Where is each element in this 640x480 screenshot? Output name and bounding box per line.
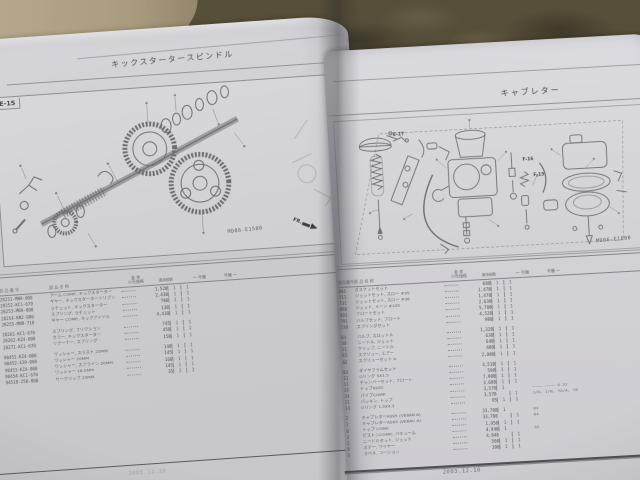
qty-col-2: 1 bbox=[505, 315, 518, 321]
qty-col-1: 1 bbox=[499, 444, 512, 450]
part-number: 3 bbox=[347, 434, 363, 440]
dot-leader bbox=[126, 360, 140, 363]
qty-col-1: 1 bbox=[171, 343, 184, 349]
dot-leader bbox=[449, 371, 463, 374]
qty-col-1: 1 bbox=[498, 419, 511, 425]
qty-col-2: 1 bbox=[507, 344, 520, 350]
dot-leader bbox=[447, 330, 461, 333]
right-table-body: 801 ガスケットセット 680 1 1 711 ジェットセット, スロー #3… bbox=[338, 270, 640, 458]
qty-col-2: 1 bbox=[505, 309, 518, 315]
qty-col-1: 1 bbox=[170, 320, 183, 326]
part-number: 990 bbox=[339, 306, 355, 312]
right-page-title: キャブレター bbox=[436, 81, 626, 103]
dot-leader bbox=[125, 337, 139, 340]
dot-leader bbox=[444, 283, 458, 286]
dot-leader bbox=[450, 377, 464, 380]
qty-col-1: 1 bbox=[167, 285, 180, 291]
qty-col-1: 1 bbox=[496, 379, 509, 385]
part-price: 980 bbox=[462, 317, 492, 324]
qty-col-1: 1 bbox=[499, 437, 512, 443]
part-number: 03 bbox=[343, 369, 359, 375]
qty-col-1: 1 bbox=[494, 344, 507, 350]
qty-col-1: 1 bbox=[168, 291, 181, 297]
qty-col-2: 1 bbox=[181, 296, 194, 302]
qty-col-1: 1 bbox=[173, 362, 186, 368]
dot-leader bbox=[126, 347, 140, 350]
qty-col-2: 2 bbox=[186, 367, 199, 373]
header-rule bbox=[333, 63, 640, 82]
dot-leader bbox=[452, 417, 466, 420]
qty-col-1 bbox=[499, 434, 512, 435]
qty-col-2: 1 bbox=[511, 412, 524, 418]
part-price: 150 bbox=[141, 333, 171, 340]
dot-leader bbox=[126, 354, 140, 357]
dot-leader bbox=[445, 302, 459, 305]
qty-col-1: 1 bbox=[494, 350, 507, 356]
qty-col-1: 1 bbox=[172, 355, 185, 361]
left-parts-table: 部 品 番 号 部 品 名 称 参 考小売価格 適用個数 〜 号機号機 〜 一連… bbox=[0, 252, 365, 386]
qty-col-2: 1 bbox=[184, 342, 197, 348]
qty-col-2: 1 bbox=[180, 284, 193, 290]
dot-leader bbox=[122, 302, 136, 305]
dot-leader bbox=[446, 308, 460, 311]
part-number: 993 bbox=[340, 312, 356, 318]
part-price: 35 bbox=[143, 369, 173, 376]
right-footer-date: 2003.12.10 bbox=[443, 467, 481, 475]
arrow-tail bbox=[302, 222, 311, 228]
dot-leader bbox=[124, 325, 138, 328]
qty-col-1: 1 bbox=[492, 310, 505, 316]
qty-col-2: 1 bbox=[507, 350, 520, 356]
qty-col-2: 1 bbox=[508, 360, 521, 366]
qty-col-2: 1 bbox=[184, 332, 197, 338]
part-number: 801 bbox=[338, 288, 354, 294]
dot-leader bbox=[448, 354, 462, 357]
part-number: 02 bbox=[342, 359, 358, 365]
dot-leader bbox=[452, 423, 466, 426]
dot-leader bbox=[451, 401, 465, 404]
part-number: 04 bbox=[341, 334, 357, 340]
qty-col-2: 1 bbox=[509, 390, 522, 396]
dot-leader bbox=[452, 429, 466, 432]
qty-col-2: 1 bbox=[512, 437, 525, 443]
qty-col-1: 1 bbox=[169, 303, 182, 309]
part-number: 30 bbox=[341, 340, 357, 346]
qty-col-2: 1 bbox=[504, 297, 517, 303]
qty-col-1: 1 bbox=[171, 333, 184, 339]
qty-col-2: 1 bbox=[181, 290, 194, 296]
part-number: 791 bbox=[340, 318, 356, 324]
right-parts-table: 部品番号 部 品 名 称 参 考小売価格 適用個数 〜 号機号機 〜 一連番号 … bbox=[337, 251, 640, 458]
qty-col-1: 1 bbox=[496, 385, 509, 391]
part-number: 11 bbox=[345, 399, 361, 405]
reference-label: E-17 bbox=[393, 132, 404, 138]
dot-leader bbox=[451, 411, 465, 414]
qty-col-2: 1 bbox=[185, 354, 198, 360]
reference-label: F-15 bbox=[533, 172, 544, 178]
qty-col-1: 1 bbox=[497, 397, 510, 403]
left-footer-date: 2003.12.10 bbox=[128, 468, 166, 477]
part-number: 34 bbox=[344, 393, 360, 399]
qty-col-2: 1 bbox=[508, 366, 521, 372]
qty-col-2: 1 bbox=[506, 325, 519, 331]
photo-of-open-parts-catalog: キックスタータースピンドル E-15 bbox=[0, 0, 640, 480]
dot-leader bbox=[450, 383, 464, 386]
dot-leader bbox=[453, 435, 467, 438]
part-number: 11 bbox=[342, 347, 358, 353]
dot-leader bbox=[451, 395, 465, 398]
carburetor-diagram-frame: E-17F-16F-15 MD06-E1600 bbox=[333, 103, 640, 265]
part-number: 11 bbox=[344, 381, 360, 387]
dot-leader bbox=[124, 331, 138, 334]
dot-leader bbox=[448, 348, 462, 351]
qty-col-1: 1 bbox=[172, 349, 185, 355]
left-page: キックスタータースピンドル E-15 bbox=[0, 15, 380, 480]
part-number: 0 bbox=[346, 428, 362, 434]
dot-leader bbox=[127, 373, 141, 376]
qty-col-2: 1 bbox=[505, 303, 518, 309]
part-number: 11 bbox=[343, 375, 359, 381]
qty-col-1: 1 bbox=[491, 298, 504, 304]
part-price: 2,000 bbox=[464, 351, 494, 358]
qty-col-2: 1 bbox=[508, 372, 521, 378]
qty-col-1: 1 bbox=[495, 367, 508, 373]
reference-label: F-16 bbox=[522, 157, 533, 163]
part-price: 4,410 bbox=[139, 311, 169, 318]
qty-col-2: 1 bbox=[506, 331, 519, 337]
part-number: 5 bbox=[348, 452, 364, 458]
qty-col-2: 1 bbox=[509, 378, 522, 384]
right-page: キャブレター bbox=[323, 33, 640, 480]
qty-col-2: 1 bbox=[510, 396, 523, 402]
qty-col-1: 1 bbox=[493, 326, 506, 332]
dot-leader bbox=[127, 366, 141, 369]
dot-leader bbox=[448, 342, 462, 345]
kickstarter-spindle-exploded-diagram bbox=[0, 75, 348, 267]
dot-leader bbox=[122, 295, 136, 298]
dot-leader bbox=[450, 389, 464, 392]
dot-leader bbox=[123, 314, 137, 317]
qty-col-1: 1 bbox=[493, 338, 506, 344]
part-number: 03 bbox=[342, 353, 358, 359]
qty-col-1: 1 bbox=[493, 332, 506, 338]
qty-col-2: 1 bbox=[504, 291, 517, 297]
qty-col-2: 1 bbox=[182, 309, 195, 315]
qty-col-1: 1 bbox=[495, 373, 508, 379]
qty-col-2: 1 bbox=[503, 285, 516, 291]
part-number: 1 bbox=[347, 440, 363, 446]
qty-col-2: 1 bbox=[511, 419, 524, 425]
qty-col-1: 1 bbox=[498, 425, 511, 431]
carburetor-exploded-diagram bbox=[334, 104, 640, 263]
qty-col-2: 1 bbox=[512, 431, 525, 437]
qty-col-2: 1 bbox=[183, 325, 196, 331]
qty-col-1 bbox=[498, 416, 511, 417]
dot-leader bbox=[445, 296, 459, 299]
part-price: 95 bbox=[467, 398, 497, 405]
qty-col-2: 1 bbox=[506, 338, 519, 344]
dot-leader bbox=[446, 314, 460, 317]
part-number: 730 bbox=[340, 324, 356, 330]
kickstarter-diagram-frame: E-15 bbox=[0, 73, 349, 267]
dot-leader bbox=[121, 289, 135, 292]
part-number: 1 bbox=[346, 421, 362, 427]
qty-col-2 bbox=[509, 387, 522, 388]
qty-col-1 bbox=[497, 393, 510, 394]
qty-col-1: 1 bbox=[492, 316, 505, 322]
qty-col-2: 1 bbox=[183, 319, 196, 325]
dot-leader bbox=[447, 336, 461, 339]
part-number: 0 bbox=[347, 446, 363, 452]
part-price: 380 bbox=[469, 444, 499, 451]
part-number: 711 bbox=[339, 294, 355, 300]
qty-col-2: 1 bbox=[186, 361, 199, 367]
dot-leader bbox=[453, 441, 467, 444]
dot-leader bbox=[453, 448, 467, 451]
qty-col-1: 1 bbox=[168, 297, 181, 303]
qty-col-2: 1 bbox=[512, 443, 525, 449]
qty-col-1: 2 bbox=[173, 368, 186, 374]
dot-leader bbox=[445, 290, 459, 293]
qty-col-2: 1 bbox=[185, 348, 198, 354]
qty-col-2: 1 bbox=[503, 279, 516, 285]
dot-leader bbox=[446, 320, 460, 323]
qty-col-1: 1 bbox=[491, 292, 504, 298]
qty-col-2 bbox=[511, 427, 524, 428]
dot-leader bbox=[123, 308, 137, 311]
page-bottom-rule bbox=[0, 448, 377, 475]
qty-col-1: 1 bbox=[497, 407, 510, 413]
qty-col-1: 1 bbox=[170, 326, 183, 332]
dot-leader bbox=[449, 364, 463, 367]
part-number: 14 bbox=[345, 405, 361, 411]
qty-col-1: 1 bbox=[495, 360, 508, 366]
part-number: 2 bbox=[346, 415, 362, 421]
qty-col-1: 1 bbox=[491, 286, 504, 292]
qty-col-1: 1 bbox=[169, 310, 182, 316]
part-number: 731 bbox=[339, 300, 355, 306]
qty-col-2: 1 bbox=[182, 302, 195, 308]
qty-col-2 bbox=[510, 409, 523, 410]
qty-col-1: 1 bbox=[490, 279, 503, 285]
part-number: 35 bbox=[344, 387, 360, 393]
qty-col-1: 1 bbox=[492, 304, 505, 310]
